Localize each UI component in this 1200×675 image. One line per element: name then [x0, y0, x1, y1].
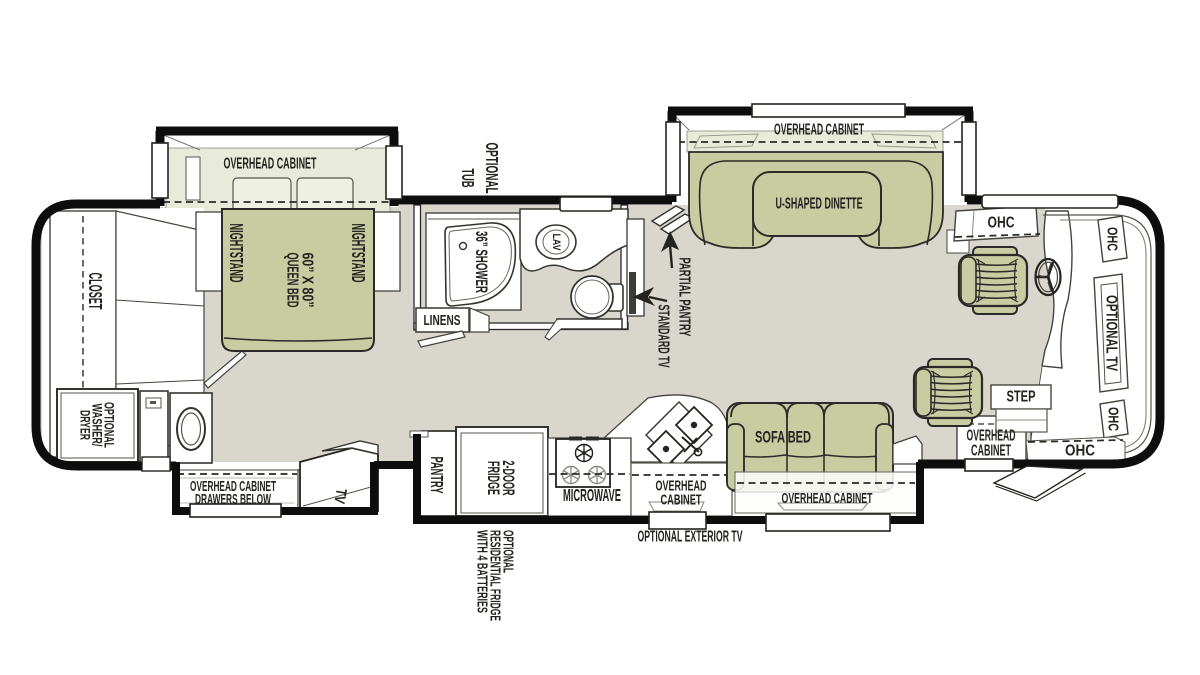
svg-text:DRAWERS BELOW: DRAWERS BELOW [195, 492, 271, 508]
svg-text:LINENS: LINENS [424, 313, 461, 329]
svg-text:NIGHTSTAND: NIGHTSTAND [348, 224, 368, 283]
svg-text:FRIDGE: FRIDGE [484, 461, 502, 495]
svg-text:OHC: OHC [1065, 443, 1095, 460]
svg-text:PANTRY: PANTRY [427, 457, 447, 494]
svg-text:U-SHAPED DINETTE: U-SHAPED DINETTE [776, 196, 863, 213]
svg-text:TUB: TUB [458, 169, 478, 188]
svg-text:CABINET: CABINET [661, 492, 702, 509]
svg-text:OVERHEAD CABINET: OVERHEAD CABINET [782, 491, 873, 507]
svg-text:OPTIONAL TV: OPTIONAL TV [1103, 295, 1120, 371]
svg-text:36” SHOWER: 36” SHOWER [472, 231, 490, 293]
svg-text:OHC: OHC [1105, 407, 1122, 431]
svg-text:LAV: LAV [550, 234, 562, 252]
svg-text:TV: TV [330, 487, 349, 505]
svg-text:MICROWAVE: MICROWAVE [563, 485, 621, 505]
svg-text:SOFA BED: SOFA BED [755, 428, 811, 447]
svg-text:NIGHTSTAND: NIGHTSTAND [226, 224, 246, 283]
svg-text:STEP: STEP [1007, 389, 1036, 406]
svg-text:CABINET: CABINET [971, 443, 1011, 460]
svg-text:OPTIONAL EXTERIOR TV: OPTIONAL EXTERIOR TV [638, 529, 743, 546]
svg-text:PARTIAL PANTRY: PARTIAL PANTRY [676, 258, 693, 337]
svg-text:OHC: OHC [1104, 227, 1121, 251]
svg-text:OVERHEAD CABINET: OVERHEAD CABINET [774, 122, 864, 139]
svg-text:CLOSET: CLOSET [85, 273, 105, 310]
svg-text:OPTIONAL: OPTIONAL [482, 143, 502, 194]
svg-text:STANDARD TV: STANDARD TV [655, 305, 672, 368]
svg-text:WITH 4 BATTERIES: WITH 4 BATTERIES [474, 530, 491, 613]
svg-text:OHC: OHC [988, 215, 1015, 232]
svg-text:QUEEN BED: QUEEN BED [284, 253, 301, 308]
svg-text:DRYER: DRYER [78, 410, 93, 440]
svg-text:OVERHEAD CABINET: OVERHEAD CABINET [224, 156, 317, 173]
